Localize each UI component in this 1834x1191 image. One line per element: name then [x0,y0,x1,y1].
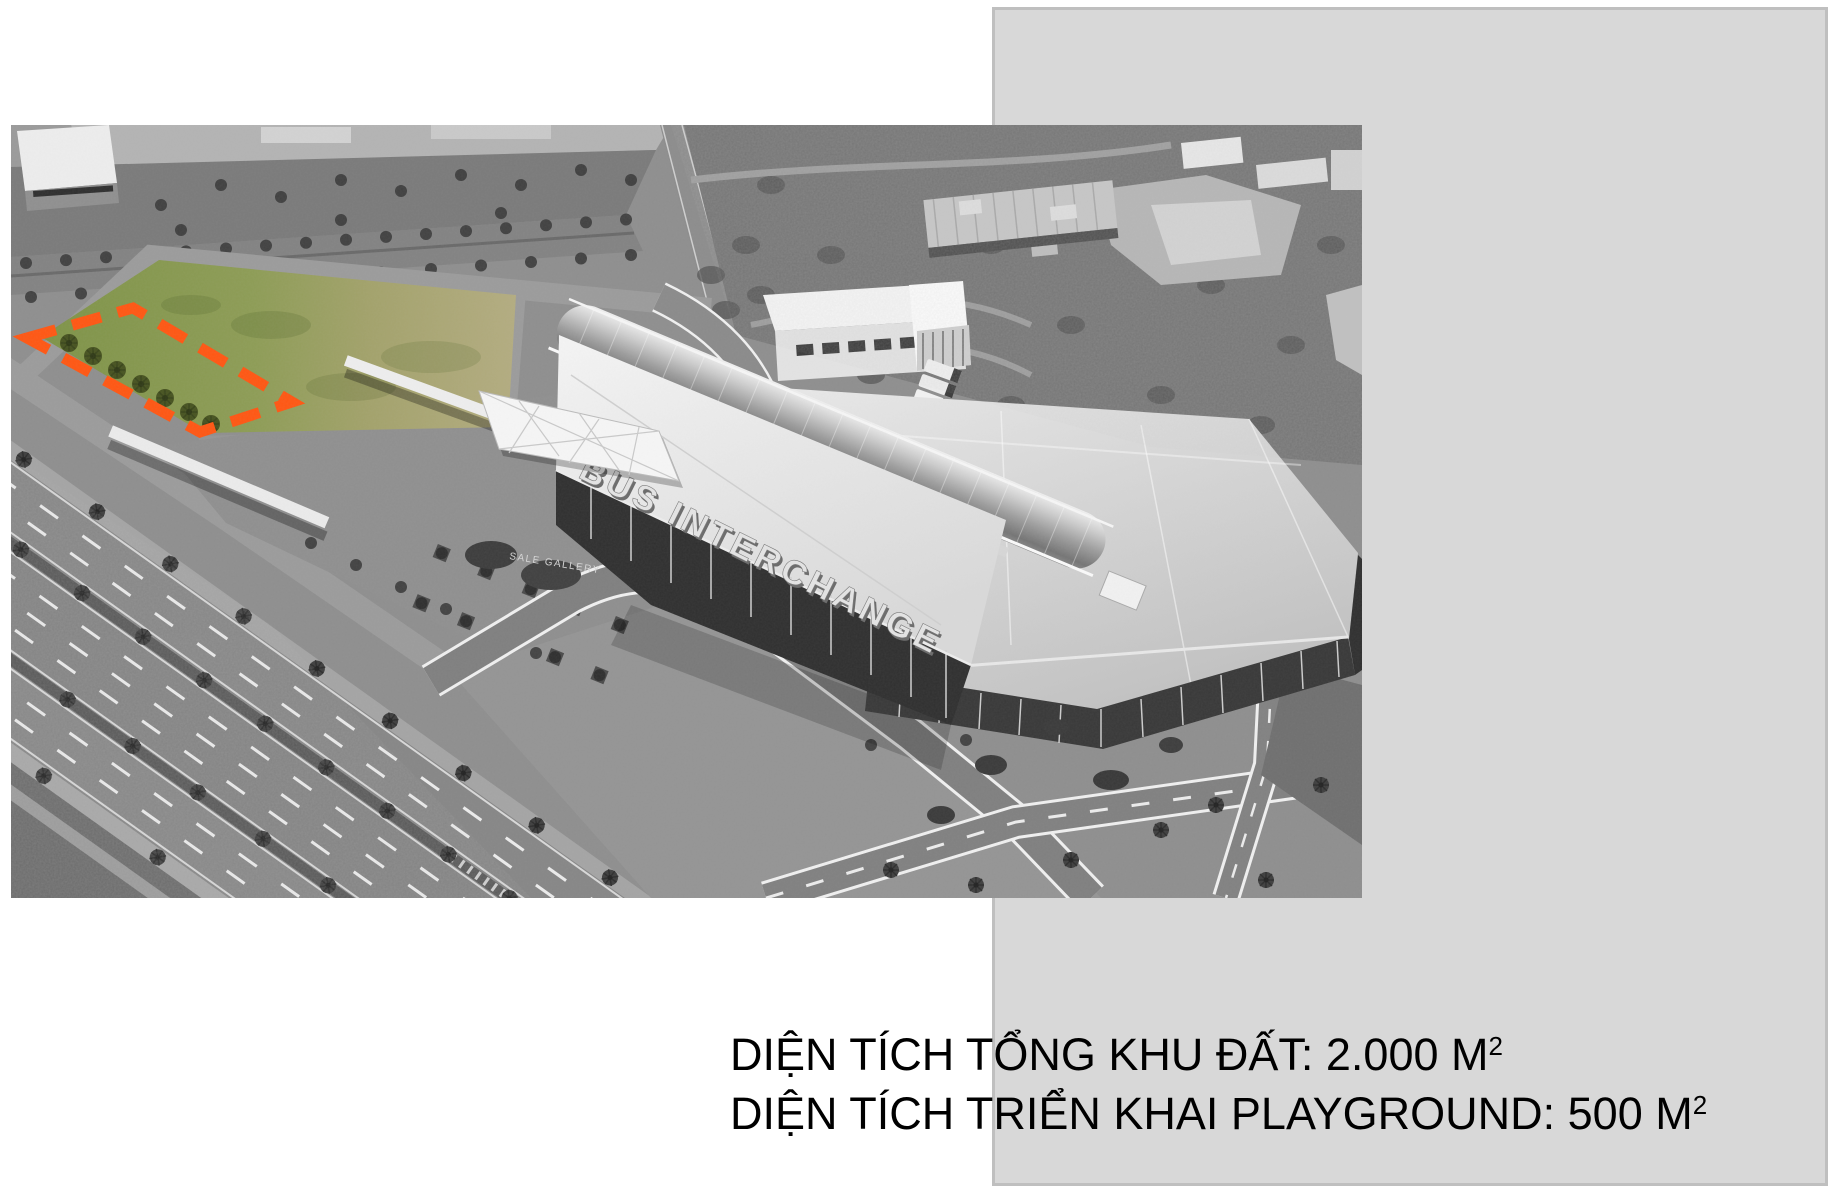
aerial-photo: BUS INTERCHANGE BUS INTERCHANGE SALE GAL… [11,125,1362,898]
aerial-photo-svg: BUS INTERCHANGE BUS INTERCHANGE SALE GAL… [11,125,1362,898]
slide: BUS INTERCHANGE BUS INTERCHANGE SALE GAL… [0,0,1834,1191]
caption-line-1: DIỆN TÍCH TỔNG KHU ĐẤT: 2.000 M2 [730,1021,1707,1080]
caption-line-2-text: DIỆN TÍCH TRIỂN KHAI PLAYGROUND: 500 M [730,1088,1693,1139]
caption-line-1-text: DIỆN TÍCH TỔNG KHU ĐẤT: 2.000 M [730,1029,1489,1080]
caption: DIỆN TÍCH TỔNG KHU ĐẤT: 2.000 M2 DIỆN TÍ… [730,1021,1707,1139]
caption-line-1-superscript: 2 [1489,1031,1503,1061]
caption-line-2: DIỆN TÍCH TRIỂN KHAI PLAYGROUND: 500 M2 [730,1080,1707,1139]
caption-line-2-superscript: 2 [1693,1090,1707,1120]
